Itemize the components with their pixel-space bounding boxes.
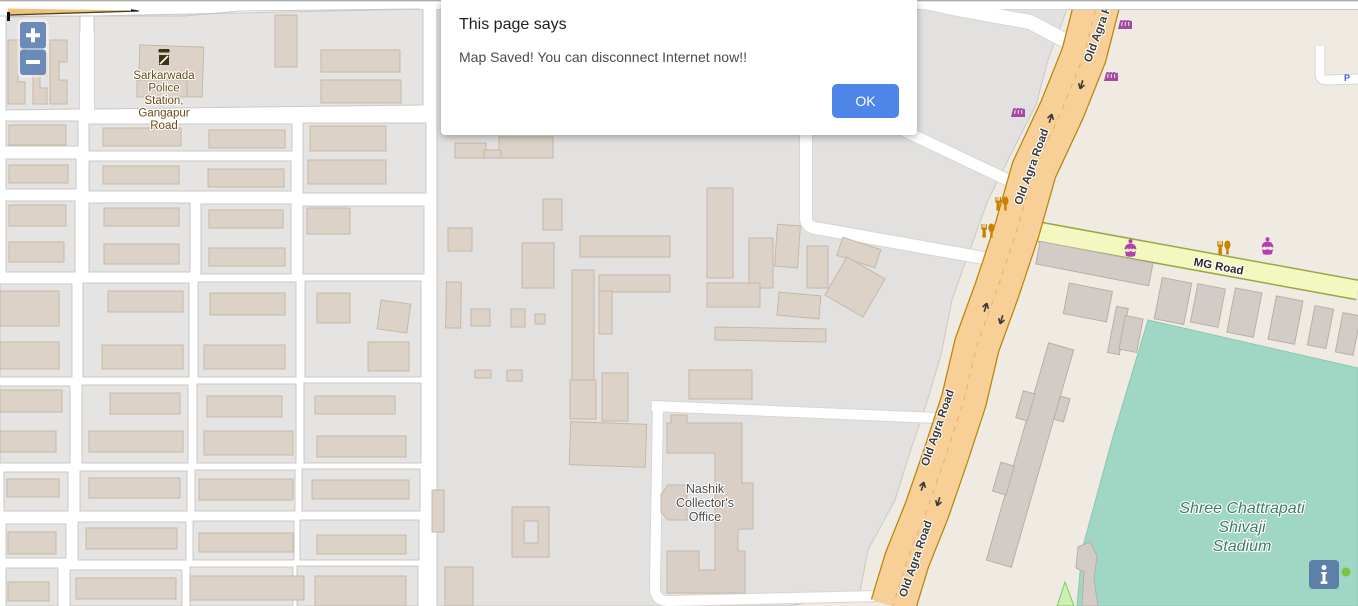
svg-text:Station,: Station, (145, 95, 184, 107)
svg-text:Sarkarwada: Sarkarwada (133, 70, 195, 82)
svg-text:Shree Chattrapati: Shree Chattrapati (1179, 500, 1305, 517)
svg-text:Road: Road (150, 120, 178, 132)
svg-text:Shivaji: Shivaji (1218, 519, 1266, 536)
svg-text:Collector's: Collector's (676, 496, 734, 510)
svg-text:Office: Office (689, 510, 721, 524)
svg-text:Gangapur: Gangapur (138, 108, 189, 120)
svg-text:P: P (1344, 73, 1350, 83)
svg-text:Stadium: Stadium (1213, 538, 1272, 555)
svg-text:Police: Police (148, 83, 179, 95)
svg-text:Nashik: Nashik (686, 482, 725, 496)
